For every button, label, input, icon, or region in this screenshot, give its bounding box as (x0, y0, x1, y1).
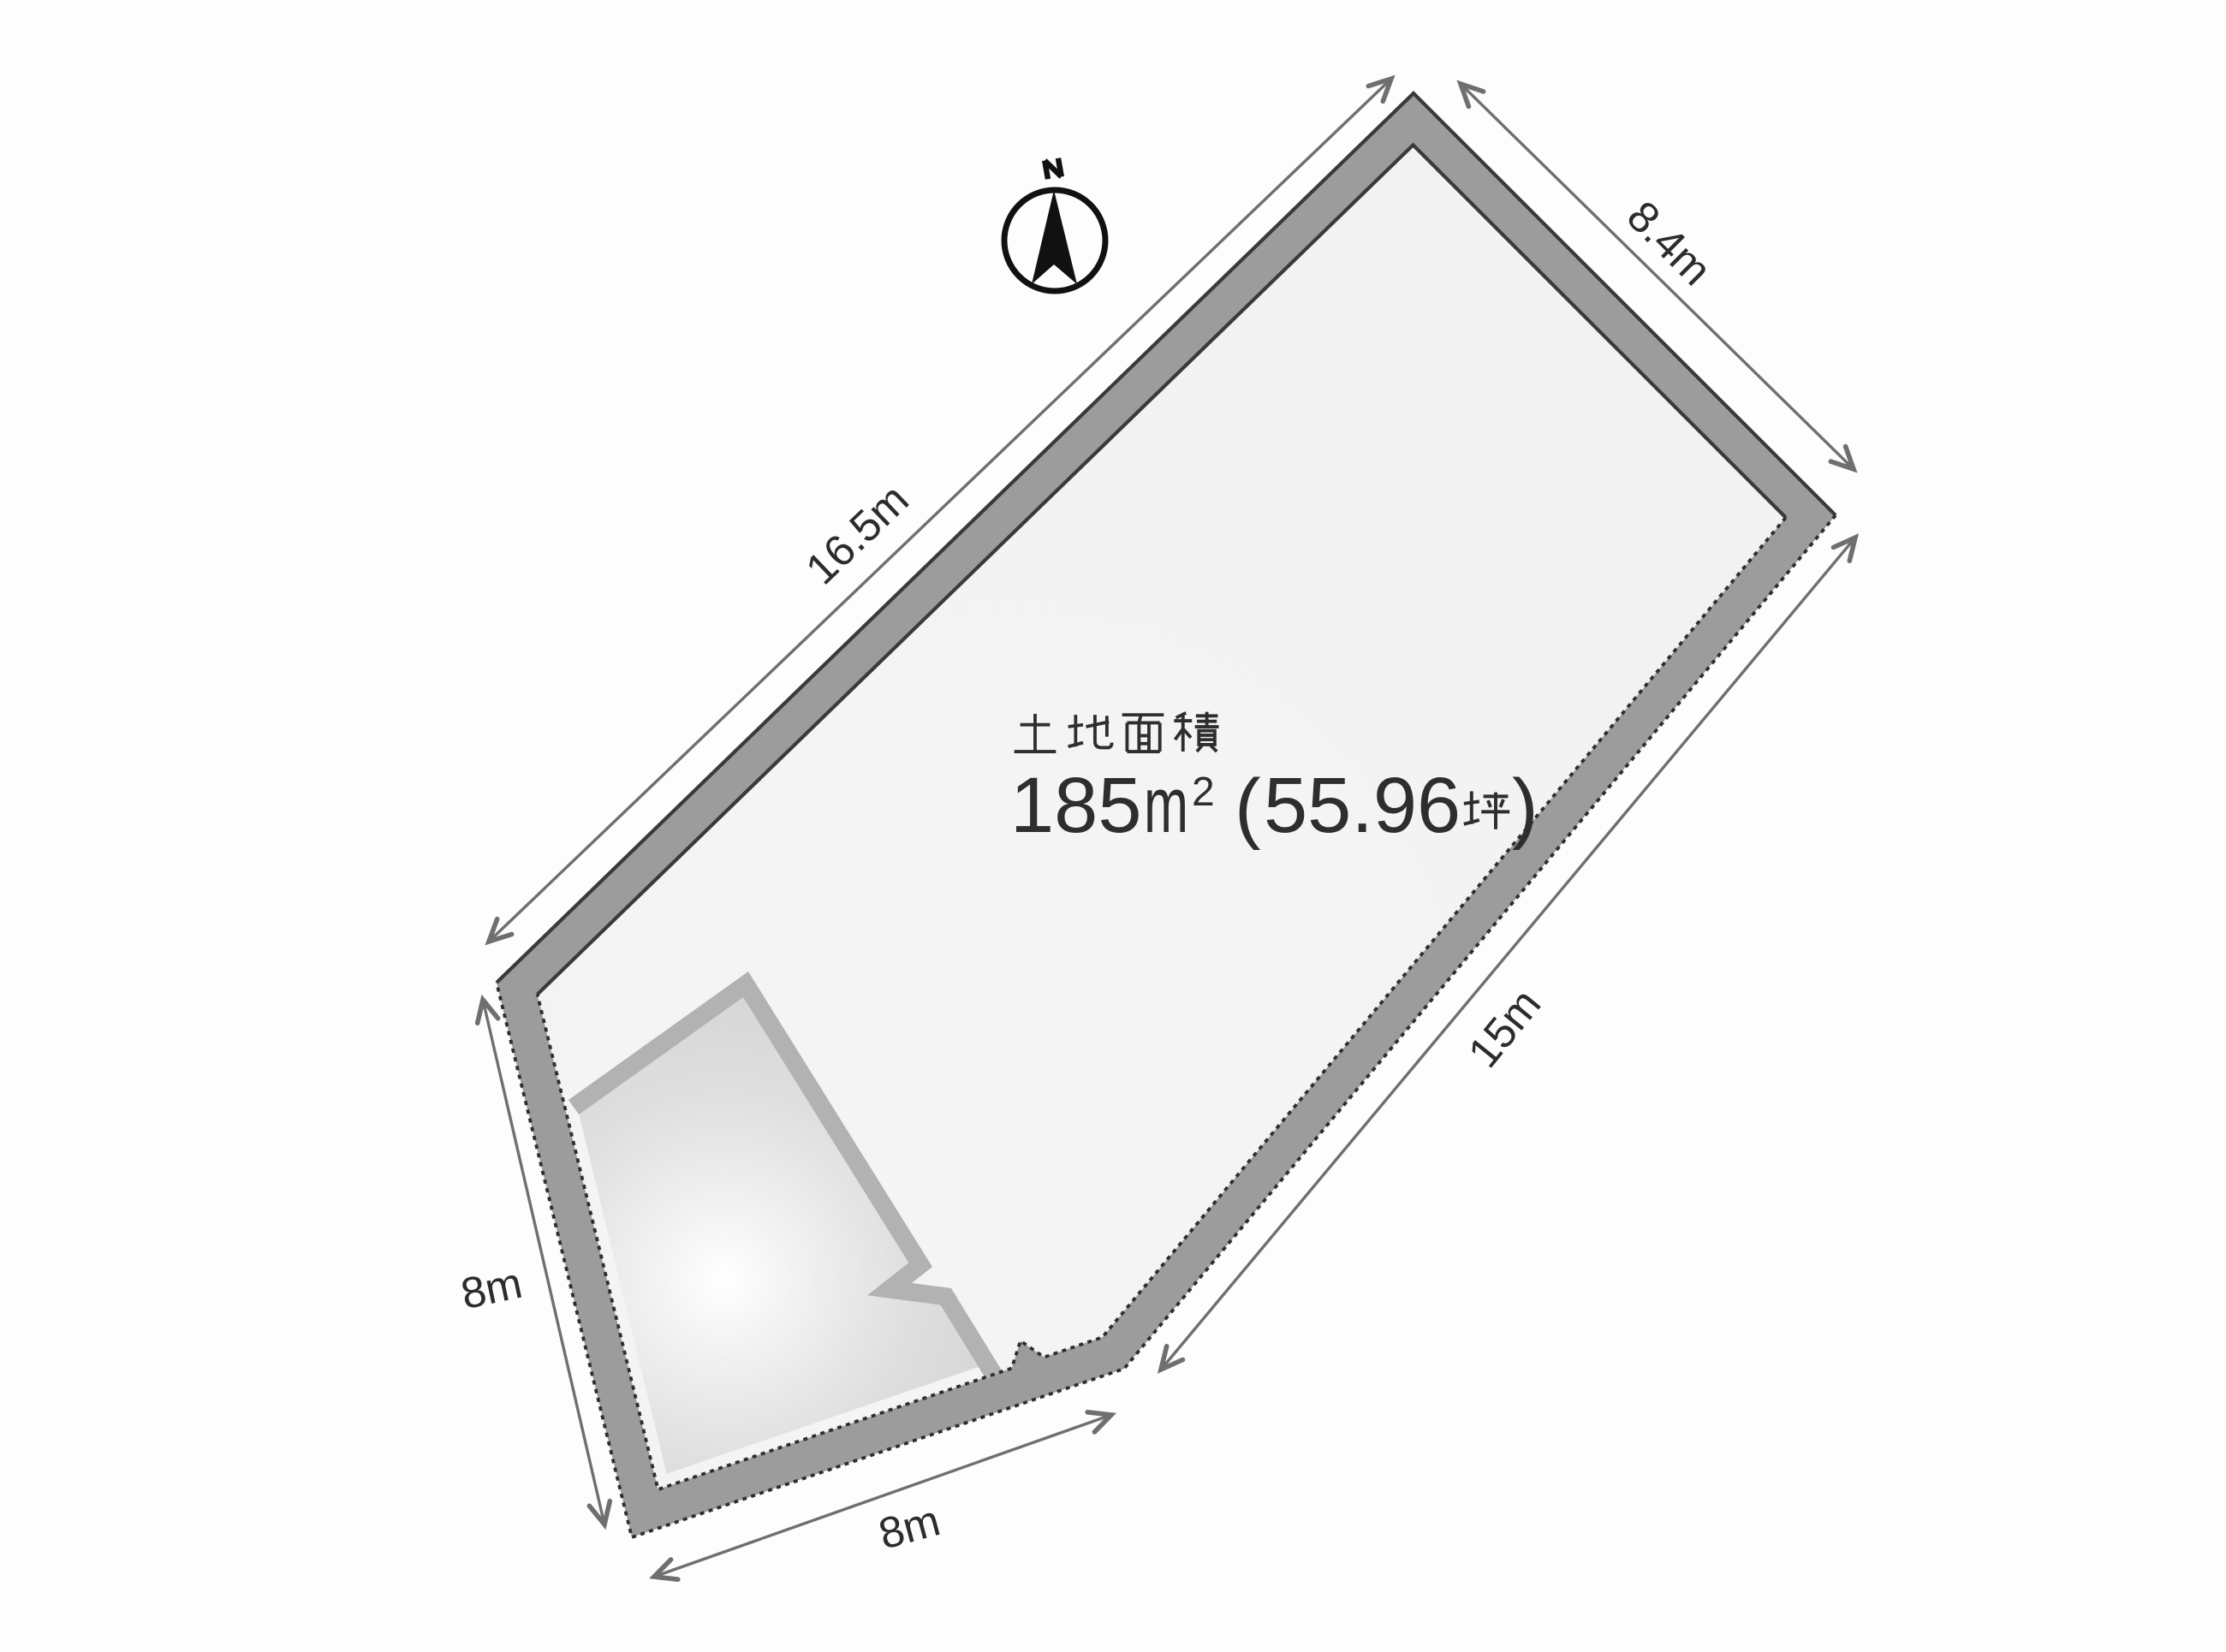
svg-text:m: m (1144, 762, 1188, 849)
svg-text:55.96: 55.96 (1264, 762, 1461, 849)
svg-text:): ) (1512, 764, 1539, 851)
svg-text:(: ( (1235, 764, 1261, 851)
svg-text:2: 2 (1192, 770, 1215, 815)
svg-text:185: 185 (1010, 762, 1142, 849)
